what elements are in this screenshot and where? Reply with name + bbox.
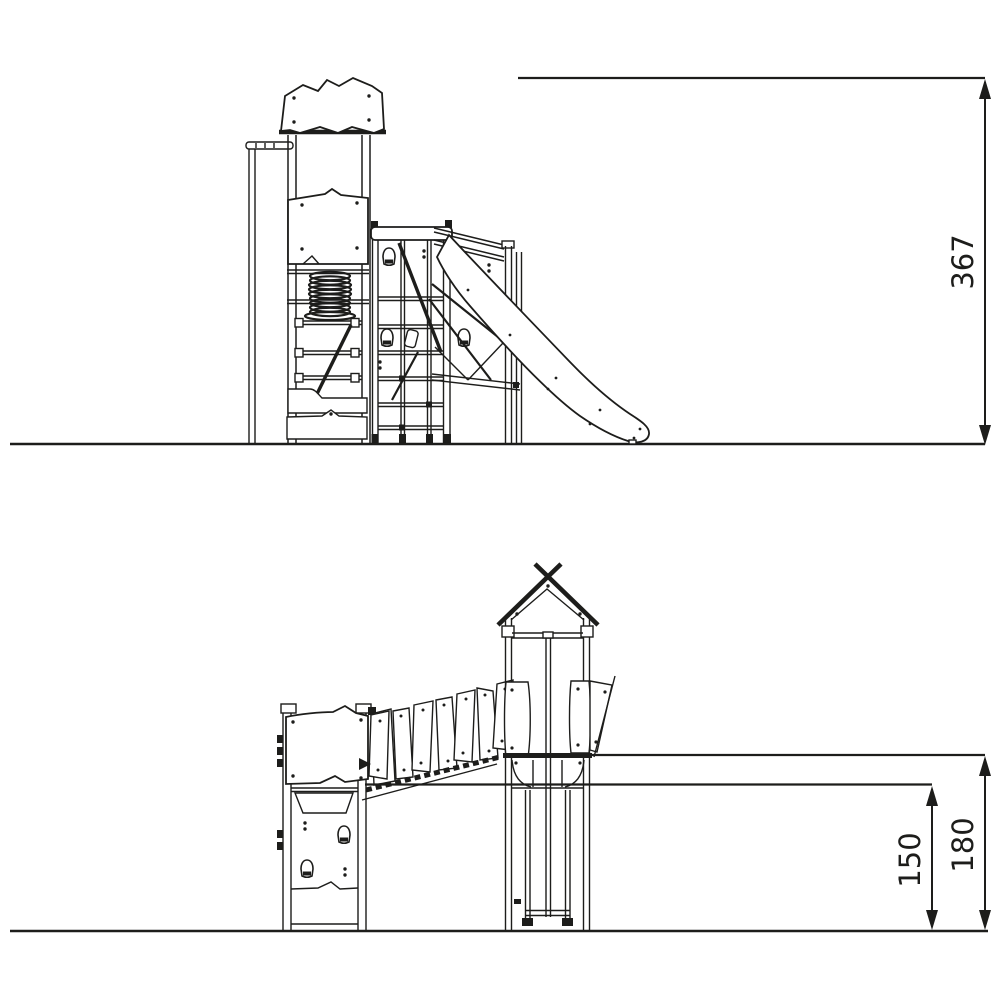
roof-rafter-right <box>535 564 598 625</box>
wall-opening <box>295 793 353 813</box>
tower-crown-panel <box>279 78 386 133</box>
arrow-down-icon <box>979 425 991 445</box>
tower-platform <box>503 753 592 758</box>
bolt-pair <box>343 867 346 876</box>
tower-mid-panel <box>288 189 368 264</box>
slide-foot <box>629 440 636 444</box>
tilted-side-panel <box>590 681 612 752</box>
arrow-up-icon <box>979 756 991 776</box>
climbing-hold <box>338 826 350 843</box>
climbing-hold <box>383 248 395 265</box>
arrow-down-icon <box>979 910 991 930</box>
dimension-lower-level: 150 <box>365 785 938 931</box>
climbing-wall <box>277 704 371 930</box>
climbing-hold <box>381 329 393 346</box>
bolt-pair <box>303 821 306 830</box>
arrow-up-icon <box>926 786 938 806</box>
climbing-hold <box>301 860 313 877</box>
arrow-down-icon <box>926 910 938 930</box>
arrow-up-icon <box>979 79 991 99</box>
roof-rafter-left <box>498 564 561 625</box>
front-elevation-view: 180 150 <box>10 564 991 931</box>
fireman-pole <box>246 142 293 443</box>
tower-base-panels <box>287 389 367 439</box>
roof-tower <box>498 564 615 930</box>
technical-drawing-page: 367 <box>0 0 1000 1000</box>
spring-coil <box>287 270 369 320</box>
bolt-pair <box>487 263 490 272</box>
dimension-label-lower-level: 150 <box>893 832 927 887</box>
side-elevation-view: 367 <box>10 78 991 445</box>
dimension-label-upper-level: 180 <box>946 817 980 872</box>
dimension-label-total-height: 367 <box>946 234 980 289</box>
playground-elevation-drawing: 367 <box>0 0 1000 1000</box>
bolt-pair <box>378 360 381 369</box>
bolt-pair <box>422 249 425 258</box>
